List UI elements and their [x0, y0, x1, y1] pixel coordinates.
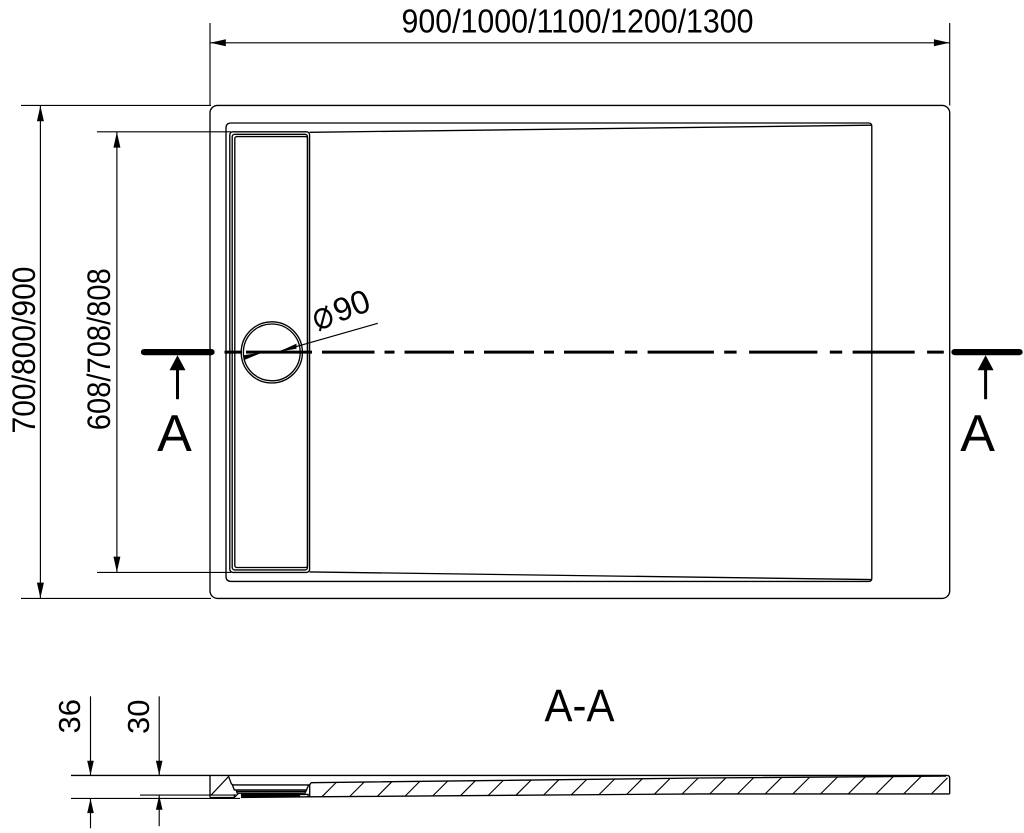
svg-text:A: A: [157, 405, 192, 463]
svg-text:36: 36: [52, 699, 87, 733]
svg-text:A: A: [960, 405, 995, 463]
svg-text:A-A: A-A: [545, 680, 615, 731]
svg-text:608/708/808: 608/708/808: [81, 268, 117, 430]
svg-text:700/800/900: 700/800/900: [6, 267, 42, 434]
svg-text:30: 30: [121, 700, 156, 734]
svg-text:90: 90: [328, 282, 375, 330]
svg-text:900/1000/1100/1200/1300: 900/1000/1100/1200/1300: [402, 3, 754, 40]
